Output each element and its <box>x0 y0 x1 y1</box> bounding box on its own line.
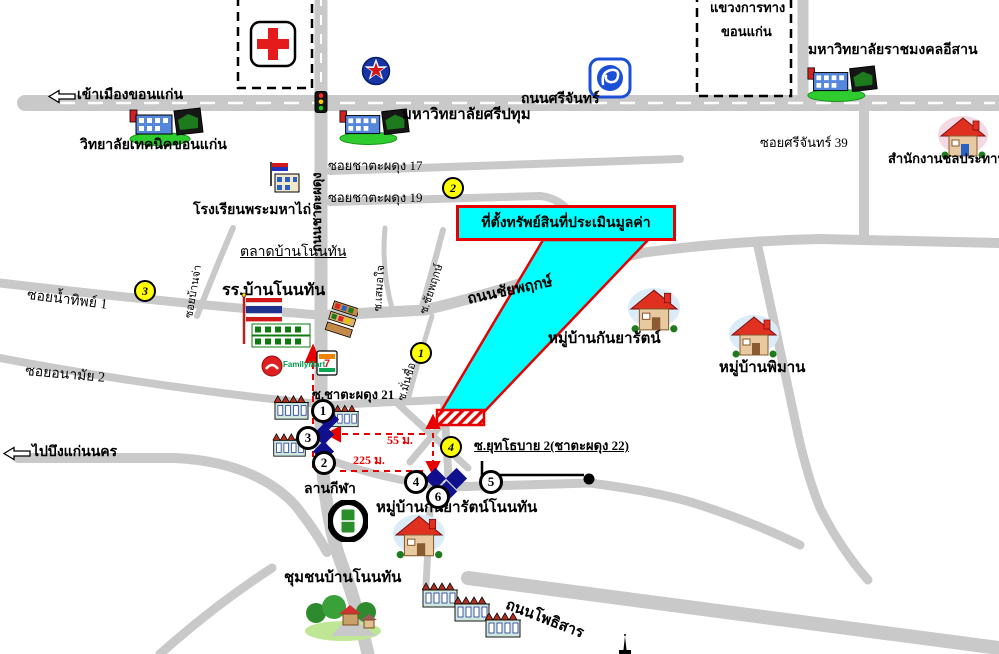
label-rmuti: มหาวิทยาลัยราชมงคลอีสาน <box>808 43 978 59</box>
marker-white-6: 6 <box>426 485 450 509</box>
property-callout: ที่ตั้งทรัพย์สินที่ประเมินมูลค่า <box>456 205 676 241</box>
mahathai-school-icon <box>265 160 301 198</box>
label-highway-district-2: ขอนแก่น <box>721 25 772 40</box>
traffic-light-icon <box>314 91 328 113</box>
label-technic-college: วิทยาลัยเทคนิคขอนแก่น <box>80 138 227 154</box>
label-community: ชุมชนบ้านโนนทัน <box>284 570 401 587</box>
label-enter-city: เข้าเมืองขอนแก่น <box>77 88 183 104</box>
rowhouse-icon <box>422 580 458 610</box>
label-sripatum: มหาวิทยาลัยศรีปทุม <box>402 107 531 124</box>
label-phiman-village: หมู่บ้านพิมาน <box>719 360 805 377</box>
marker-yellow-4: 4 <box>440 436 462 458</box>
temple-icon <box>613 634 637 654</box>
arrow-left-icon <box>48 89 76 104</box>
label-road-chatapadung: ถนนชาตะผดุง <box>310 172 325 252</box>
property-pointer-wedge <box>440 240 648 413</box>
label-to-bueng: ไปบึงแก่นนคร <box>32 445 117 461</box>
familymart-logo-text: FamilyMart <box>283 360 325 369</box>
label-soi-srichan-39: ซอยศรีจันทร์ 39 <box>760 136 848 151</box>
label-kanyarat-village: หมู่บ้านกันยารัตน์ <box>548 331 661 348</box>
label-highway-district-1: แขวงการทาง <box>710 1 785 16</box>
gas-station-logo-icon <box>361 56 391 86</box>
label-nonthan-school: รร.บ้านโนนทัน <box>222 282 325 300</box>
label-distance-55m: 55 ม. <box>387 434 413 448</box>
marker-yellow-3: 3 <box>134 280 156 302</box>
phiman-village-house-icon <box>728 312 780 360</box>
map-canvas: FamilyMart 7 <box>0 0 999 654</box>
community-village-icon <box>303 590 383 642</box>
marker-white-1: 1 <box>311 399 335 423</box>
marker-white-4: 4 <box>404 470 428 494</box>
marker-yellow-1: 1 <box>410 342 432 364</box>
label-mahathai-school: โรงเรียนพระมหาไถ่ <box>193 203 311 219</box>
arrow-left-icon <box>3 446 31 461</box>
label-road-srichan: ถนนศรีจันทร์ <box>521 92 600 108</box>
kanyarat-village-house-icon <box>623 286 685 334</box>
kanyarat-nonthan-house-icon <box>392 512 446 560</box>
rowhouse-icon <box>274 393 309 422</box>
label-irrigation-office: สำนักงานชลประทาน <box>888 152 999 167</box>
stadium-icon <box>328 500 368 542</box>
marker-white-3: 3 <box>296 426 320 450</box>
nonthan-school-icon <box>238 292 314 348</box>
soi22-pointer-dot <box>584 474 595 485</box>
label-soi-22: ซ.ยุทโธบาย 2(ชาตะผดุง 22) <box>474 439 629 454</box>
hospital-cross-icon <box>249 20 297 68</box>
road-east-extension <box>640 239 999 253</box>
marker-yellow-2: 2 <box>442 177 464 199</box>
market-stall-icon <box>324 298 358 348</box>
label-sports-ground: ลานกีฬา <box>304 482 356 498</box>
label-market: ตลาดบ้านโนนทัน <box>240 245 346 261</box>
label-soi-17: ซอยชาตะผดุง 17 <box>328 159 422 174</box>
rmuti-university-icon <box>806 64 880 102</box>
road-bueng <box>18 458 327 552</box>
marker-white-5: 5 <box>479 470 503 494</box>
familymart-logo-icon <box>261 355 283 377</box>
label-distance-225m: 225 ม. <box>353 454 385 468</box>
sripatum-university-icon <box>338 104 412 148</box>
label-soi-19: ซอยชาตะผดุง 19 <box>328 191 422 206</box>
marker-white-2: 2 <box>312 451 336 475</box>
property-parcel <box>437 410 484 425</box>
road-bottom-curve <box>160 568 272 654</box>
label-kanyarat-nonthan: หมู่บ้านกันยารัตน์โนนทัน <box>376 500 537 517</box>
